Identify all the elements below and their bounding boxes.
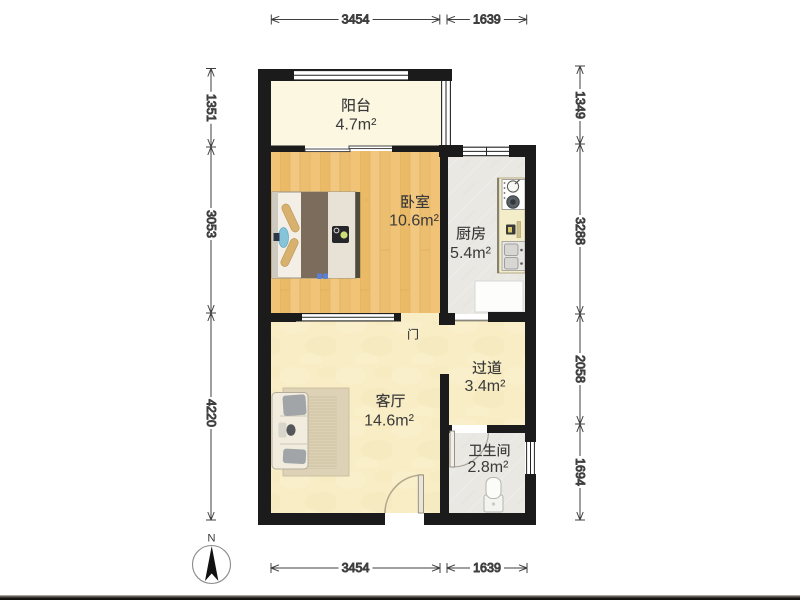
svg-text:3.4m²: 3.4m² (465, 378, 507, 395)
svg-text:10.6m²: 10.6m² (389, 213, 439, 230)
svg-text:3053: 3053 (204, 210, 218, 238)
svg-text:1694: 1694 (573, 458, 587, 486)
svg-text:5.4m²: 5.4m² (450, 245, 492, 262)
svg-text:3454: 3454 (342, 13, 370, 27)
svg-text:4220: 4220 (204, 399, 218, 427)
svg-text:1639: 1639 (473, 13, 501, 27)
svg-text:14.6m²: 14.6m² (364, 413, 414, 430)
svg-text:2058: 2058 (573, 355, 587, 383)
svg-text:1351: 1351 (204, 94, 218, 122)
svg-text:3454: 3454 (342, 561, 370, 575)
svg-text:1639: 1639 (473, 561, 501, 575)
svg-text:1349: 1349 (573, 91, 587, 119)
svg-text:2.8m²: 2.8m² (468, 459, 510, 476)
svg-text:3288: 3288 (573, 217, 587, 245)
svg-text:4.7m²: 4.7m² (336, 117, 378, 134)
svg-text:N: N (207, 532, 215, 544)
